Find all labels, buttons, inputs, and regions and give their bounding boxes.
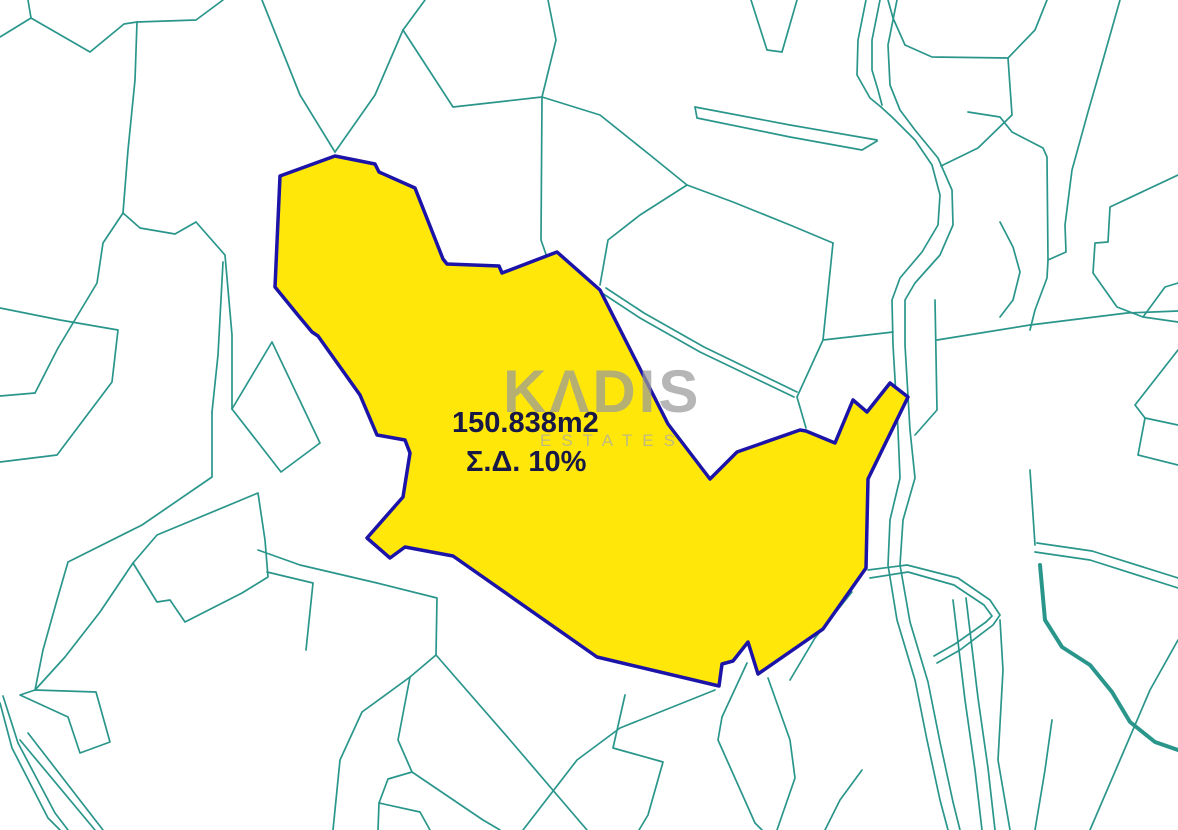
parcel-area-label: 150.838m2 (452, 408, 599, 438)
parcel-density-label: Σ.Δ. 10% (466, 447, 586, 477)
cadastral-map-viewport: KΛDIS ESTATES 150.838m2 Σ.Δ. 10% (0, 0, 1178, 830)
